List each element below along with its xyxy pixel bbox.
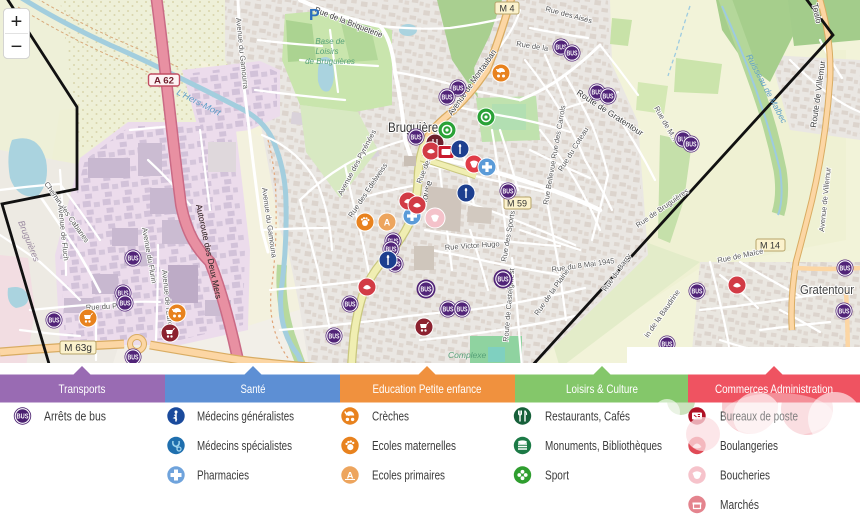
svg-text:BUS: BUS (49, 318, 60, 325)
svg-text:Transports: Transports (59, 382, 106, 396)
svg-text:−: − (11, 36, 23, 58)
svg-text:Monuments, Bibliothèques: Monuments, Bibliothèques (545, 438, 662, 453)
svg-text:A: A (384, 218, 391, 228)
svg-text:BUS: BUS (692, 289, 703, 296)
svg-text:Ecoles maternelles: Ecoles maternelles (372, 438, 456, 453)
svg-text:Boulangeries: Boulangeries (720, 438, 778, 453)
svg-text:BUS: BUS (411, 135, 422, 142)
svg-text:Base de: Base de (315, 37, 345, 46)
svg-text:BUS: BUS (421, 287, 432, 294)
svg-text:BUS: BUS (498, 277, 509, 284)
svg-text:BUS: BUS (453, 86, 464, 93)
svg-text:Complexe: Complexe (448, 350, 487, 360)
svg-text:M 14: M 14 (760, 241, 780, 251)
svg-text:+: + (11, 11, 23, 33)
svg-text:Pharmacies: Pharmacies (197, 468, 249, 483)
svg-text:M 59: M 59 (507, 199, 527, 209)
svg-text:Médecins généralistes: Médecins généralistes (197, 409, 294, 424)
svg-text:Sport: Sport (545, 468, 569, 483)
svg-text:Loisirs: Loisirs (315, 47, 338, 56)
svg-text:Ecoles primaires: Ecoles primaires (372, 468, 445, 483)
svg-text:M 4: M 4 (499, 4, 514, 14)
svg-text:BUS: BUS (442, 95, 453, 102)
svg-text:Education Petite enfance: Education Petite enfance (373, 382, 482, 396)
svg-text:BUS: BUS (128, 355, 139, 362)
svg-text:BUS: BUS (120, 301, 131, 308)
svg-text:BUS: BUS (839, 309, 850, 316)
svg-text:BUS: BUS (840, 266, 851, 273)
svg-text:BUS: BUS (686, 142, 697, 149)
svg-text:BUS: BUS (345, 302, 356, 309)
svg-text:Restaurants, Cafés: Restaurants, Cafés (545, 409, 630, 424)
svg-text:Arrêts de bus: Arrêts de bus (44, 409, 106, 424)
svg-text:M 63g: M 63g (64, 343, 92, 354)
svg-text:BUS: BUS (329, 334, 340, 341)
svg-text:BUS: BUS (128, 256, 139, 263)
svg-text:BUS: BUS (503, 189, 514, 196)
svg-text:BUS: BUS (17, 412, 29, 421)
svg-text:Marchés: Marchés (720, 497, 759, 512)
svg-text:Crèches: Crèches (372, 409, 409, 424)
svg-text:Loisirs & Culture: Loisirs & Culture (566, 382, 638, 396)
svg-text:Boucheries: Boucheries (720, 468, 770, 483)
svg-text:BUS: BUS (603, 94, 614, 101)
svg-text:BUS: BUS (443, 307, 454, 314)
svg-text:Gratentour: Gratentour (800, 283, 854, 297)
svg-text:de Bruguières: de Bruguières (305, 57, 355, 66)
svg-text:BUS: BUS (457, 307, 468, 314)
svg-text:A 62: A 62 (154, 75, 174, 85)
svg-text:Médecins spécialistes: Médecins spécialistes (197, 438, 292, 453)
svg-text:Santé: Santé (241, 382, 266, 396)
svg-text:BUS: BUS (567, 51, 578, 58)
svg-text:P: P (309, 7, 320, 24)
